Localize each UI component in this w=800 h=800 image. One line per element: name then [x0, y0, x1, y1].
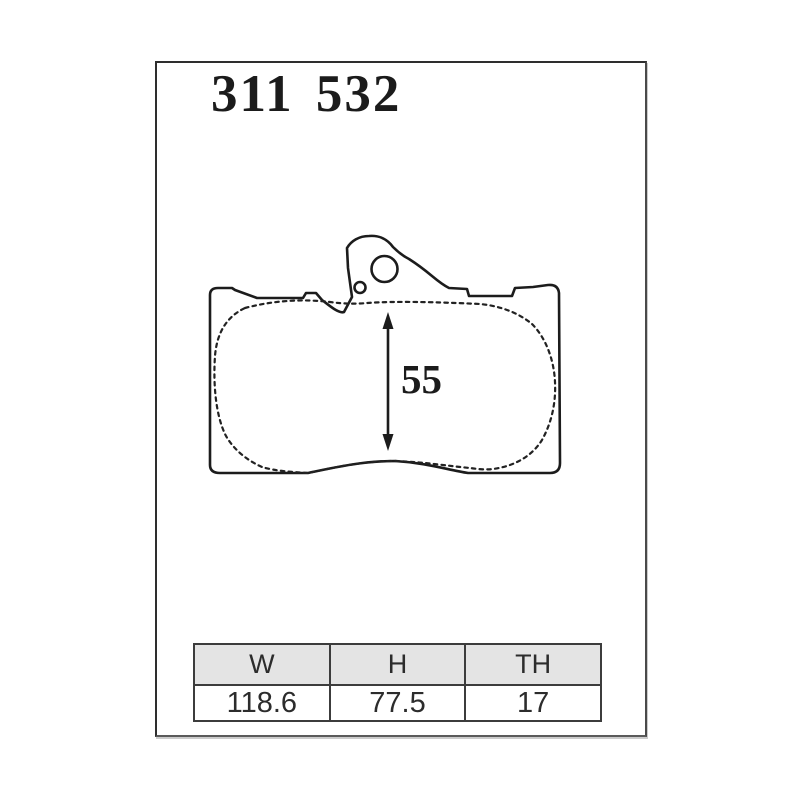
- spec-value-th: 17: [465, 685, 601, 721]
- part-number: 311 532: [211, 68, 401, 121]
- large-mounting-hole: [372, 256, 398, 282]
- spec-table-value-row: 118.6 77.5 17: [194, 685, 601, 721]
- brake-pad-diagram: 55: [180, 230, 600, 490]
- spec-table-header-row: W H TH: [194, 644, 601, 685]
- spec-header-h: H: [330, 644, 466, 685]
- arrow-down-head: [383, 434, 394, 451]
- spec-value-h: 77.5: [330, 685, 466, 721]
- page: 311 532 55 W H TH 118.6: [0, 0, 800, 800]
- dimension-arrow: [383, 312, 394, 451]
- spec-value-w: 118.6: [194, 685, 330, 721]
- spec-header-th: TH: [465, 644, 601, 685]
- arrow-up-head: [383, 312, 394, 329]
- spec-header-w: W: [194, 644, 330, 685]
- dimension-label: 55: [401, 356, 442, 402]
- spec-table: W H TH 118.6 77.5 17: [193, 643, 602, 722]
- small-mounting-hole: [355, 282, 366, 293]
